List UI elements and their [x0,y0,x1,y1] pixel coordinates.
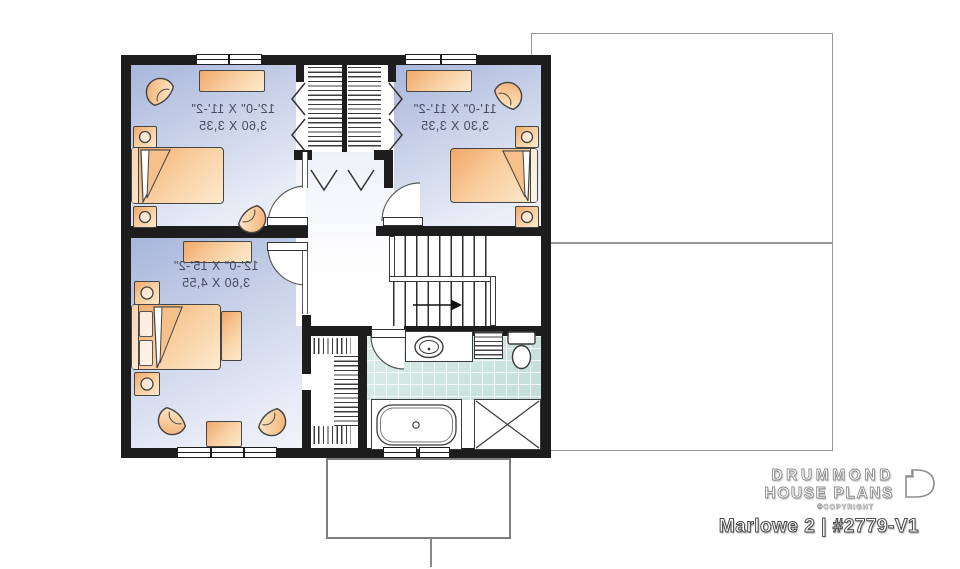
garage-outline-upper [531,33,833,243]
window-bedroom-bl-2 [211,447,244,458]
wall-walkin-east [358,336,367,448]
room-dim-metric: 3,30 X 3,35 [396,118,514,135]
brand-name: DRUMMOND HOUSE PLANS [764,467,894,503]
nightstand-tr-1 [515,126,539,148]
window-bedroom-tl-1 [196,54,229,65]
window-bedroom-tr-1 [405,54,441,65]
walkin-hatch-top [309,338,351,354]
door-leaf-bedroom-top-left [267,217,308,226]
dresser-bedroom-tr [406,70,472,92]
table-bedroom-bl [206,421,242,447]
garage-outline-lower [531,243,833,451]
walkin-hatch-right [334,356,358,426]
window-bedroom-tr-2 [441,54,477,65]
nightstand-tr-2 [515,206,539,228]
room-dim-imperial: 11'-0" X 11'-2" [396,101,514,118]
bed-bedroom-tr [450,148,538,203]
room-label-bedroom-tl: 12'-0" X 11'-2" 3,60 X 3,35 [163,101,303,135]
room-dim-imperial: 12'-0" X 15'-2" [148,258,284,275]
walkin-hatch-bottom [309,426,351,444]
window-bedroom-bl-1 [177,447,211,458]
floor-plan-canvas: 12'-0" X 11'-2" 3,60 X 3,35 11'-0" X 11'… [0,0,960,569]
door-leaf-bedroom-bottom-left [267,242,308,251]
nightstand-tl-2 [133,206,157,228]
room-label-bedroom-bl: 12'-0" X 15'-2" 3,60 X 4,55 [148,258,284,292]
window-bedroom-tl-2 [229,54,262,65]
dresser-bedroom-tl [199,70,265,92]
wall-outer-right [541,55,551,458]
window-bathroom-1 [383,447,417,458]
wall-closet-divider [342,65,347,152]
window-bedroom-bl-3 [244,447,277,458]
wall-bedroom-bl-east-lower [302,390,311,448]
wall-outer-top [121,55,551,65]
brand-copyright: ©COPYRIGHT [700,504,938,511]
wall-vestibule-left [302,152,308,188]
headboard-tl [132,148,139,203]
plan-title: Marlowe 2 | #2779-V1 [700,516,938,538]
brand-block: DRUMMOND HOUSE PLANS ©COPYRIGHT Marlowe … [700,466,938,538]
wall-closet-right-stub [388,65,396,82]
nightstand-bl-2 [134,372,160,396]
wall-bedroom-bl-east-upper [302,315,311,374]
bed-bedroom-bl [131,304,221,370]
porch-outline [326,458,511,539]
porch-center-line [430,538,432,567]
brand-line1: DRUMMOND [764,467,894,485]
hall-floor [296,152,392,326]
closet-left-hatch [308,67,342,150]
bathroom-cabinet [474,331,503,359]
door-closed-bedroom-bl [302,250,308,314]
wall-outer-left [121,55,131,458]
room-dim-metric: 3,60 X 4,55 [148,275,284,292]
stair-railing-bottom [389,276,496,282]
shower-stall [474,399,541,450]
stair-railing-right [490,276,496,326]
door-leaf-bedroom-top-right [383,217,423,226]
room-dim-metric: 3,60 X 3,35 [163,118,303,135]
wall-hall-south-left [302,326,372,336]
bed-sheet-fold-tl [132,148,225,205]
wall-bedroom-tr-west [384,150,393,188]
nightstand-tl-1 [133,126,157,148]
door-leaf-bathroom [371,329,406,338]
bed-sheet-fold-tr [451,149,539,204]
closet-right-hatch [348,67,381,150]
room-label-bedroom-tr: 11'-0" X 11'-2" 3,30 X 3,35 [396,101,514,135]
pillow-bl-1 [139,311,153,337]
window-bathroom-2 [419,447,450,458]
drummond-logo-icon [900,466,938,503]
pillow-bl-2 [139,340,153,366]
vanity-counter [405,331,473,362]
brand-line2: HOUSE PLANS [764,485,894,503]
wall-closet-left-stub [296,65,304,82]
bed-bedroom-tl [131,147,224,204]
room-dim-imperial: 12'-0" X 11'-2" [163,101,303,118]
bathtub-platform [371,399,462,450]
headboard-bl [132,305,139,369]
bench-bedroom-bl [221,311,242,361]
